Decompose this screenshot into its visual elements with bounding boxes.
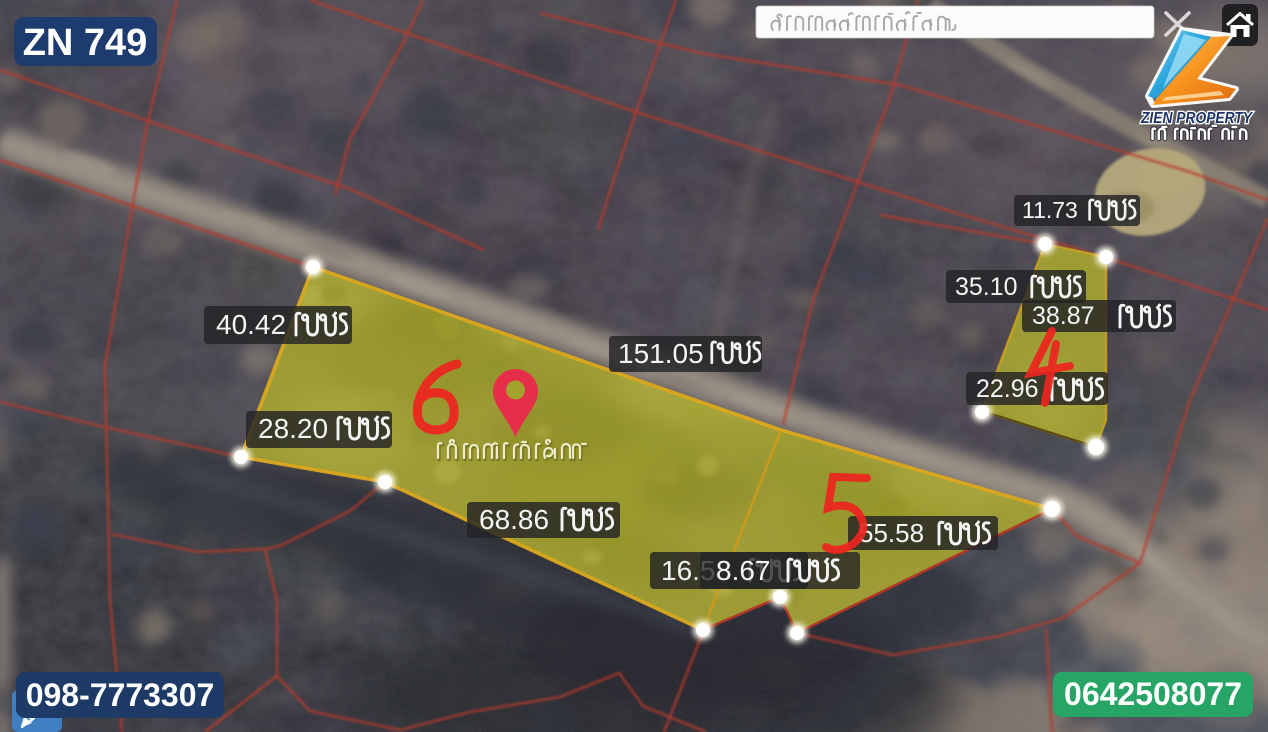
svg-text:151.05: 151.05: [618, 338, 704, 369]
svg-text:55.58: 55.58: [859, 518, 924, 548]
svg-text:098-7773307: 098-7773307: [26, 677, 215, 713]
svg-text:22.96: 22.96: [976, 375, 1039, 403]
svg-text:ZIEN PROPERTY: ZIEN PROPERTY: [1140, 110, 1253, 127]
svg-text:28.20: 28.20: [258, 413, 328, 444]
svg-text:68.86: 68.86: [479, 504, 549, 535]
svg-text:38.87: 38.87: [1032, 302, 1095, 330]
svg-text:0642508077: 0642508077: [1064, 676, 1242, 712]
svg-text:ZN 749: ZN 749: [23, 22, 148, 64]
svg-text:11.73: 11.73: [1022, 197, 1078, 223]
svg-text:40.42: 40.42: [216, 309, 286, 340]
svg-text:8.67: 8.67: [716, 555, 771, 586]
svg-text:35.10: 35.10: [955, 273, 1018, 301]
